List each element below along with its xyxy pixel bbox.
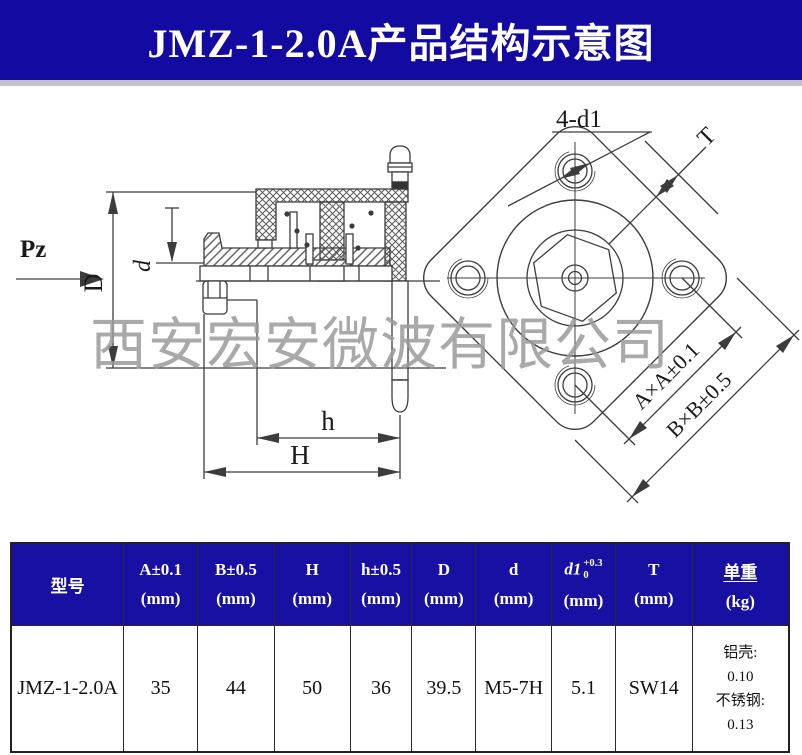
tolerance-stack: +0.30 — [583, 558, 602, 581]
dim-label-H: H — [290, 440, 310, 470]
cell-weight: 铝壳: 0.10 不锈钢: 0.13 — [692, 626, 789, 753]
cell-d: M5-7H — [476, 626, 552, 753]
dim-label-T: T — [693, 122, 722, 151]
title-banner: JMZ-1-2.0A产品结构示意图 — [0, 0, 802, 86]
cell-D: 39.5 — [412, 626, 476, 753]
cell-h: 36 — [350, 626, 412, 753]
table-header-row: 型号 A±0.1(mm) B±0.5(mm) H(mm) h±0.5(mm) D… — [11, 543, 789, 626]
header-cell-T: T(mm) — [615, 543, 692, 626]
cell-model: JMZ-1-2.0A — [11, 626, 124, 753]
pz-label: Pz — [20, 236, 46, 263]
dim-label-D: D — [79, 274, 108, 293]
watermark-text: 西安宏安微波有限公司 — [90, 314, 670, 377]
header-cell-weight: 单重(kg) — [692, 543, 789, 626]
page-title: JMZ-1-2.0A产品结构示意图 — [148, 11, 655, 69]
header-cell-B: B±0.5(mm) — [198, 543, 275, 626]
header-cell-A: A±0.1(mm) — [124, 543, 198, 626]
cell-d1: 5.1 — [552, 626, 616, 753]
holes-label: 4-d1 — [556, 106, 602, 133]
header-cell-H: H(mm) — [274, 543, 350, 626]
header-cell-d: d(mm) — [476, 543, 552, 626]
header-cell-model: 型号 — [11, 543, 124, 626]
cell-H: 50 — [274, 626, 350, 753]
side-view-drawing — [16, 146, 446, 479]
dim-label-h: h — [321, 406, 335, 436]
cell-A: 35 — [124, 626, 198, 753]
header-cell-d1: d1+0.30 (mm) — [552, 543, 616, 626]
technical-drawing: Pz D d h H — [0, 88, 802, 540]
spec-table: 型号 A±0.1(mm) B±0.5(mm) H(mm) h±0.5(mm) D… — [10, 542, 790, 753]
table-data-row: JMZ-1-2.0A 35 44 50 36 39.5 M5-7H 5.1 SW… — [11, 626, 789, 753]
dim-label-d: d — [130, 259, 156, 272]
header-cell-D: D(mm) — [412, 543, 476, 626]
cell-B: 44 — [198, 626, 275, 753]
header-cell-h: h±0.5(mm) — [350, 543, 412, 626]
front-view-drawing — [413, 116, 799, 503]
cell-T: SW14 — [615, 626, 692, 753]
